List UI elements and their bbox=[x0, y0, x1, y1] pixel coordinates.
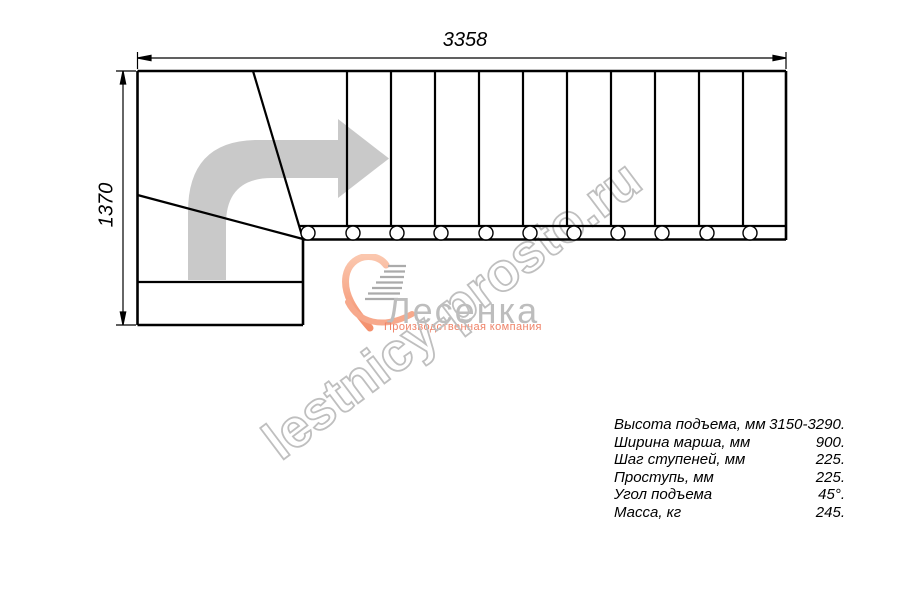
spec-label: Масса, кг bbox=[614, 504, 681, 522]
spec-row: Высота подъема, мм 3150-3290. bbox=[614, 416, 845, 434]
spec-label: Проступь, мм bbox=[614, 469, 714, 487]
stair-outline-group bbox=[138, 71, 787, 325]
dim-arrow-right bbox=[773, 55, 786, 60]
spec-label: Угол подъема bbox=[614, 486, 712, 504]
dimension-height-label: 1370 bbox=[96, 183, 119, 228]
stair-plan-drawing: Лесенка Производственная компания lestni… bbox=[0, 0, 900, 600]
spec-row: Ширина марша, мм 900. bbox=[614, 434, 845, 452]
spec-value: 3150-3290. bbox=[769, 416, 845, 434]
spec-label: Шаг ступеней, мм bbox=[614, 451, 745, 469]
tread-lines bbox=[347, 71, 743, 226]
dim-arrow-top bbox=[120, 71, 125, 84]
spec-row: Масса, кг 245. bbox=[614, 504, 845, 522]
baluster-circles bbox=[301, 226, 757, 240]
direction-arrow bbox=[188, 119, 389, 280]
dimension-width-label: 3358 bbox=[420, 29, 510, 52]
spec-label: Высота подъема, мм bbox=[614, 416, 766, 434]
dim-arrow-left bbox=[138, 55, 152, 60]
spec-value: 900. bbox=[816, 434, 845, 452]
spec-table: Высота подъема, мм 3150-3290. Ширина мар… bbox=[614, 416, 845, 521]
spec-row: Угол подъема 45°. bbox=[614, 486, 845, 504]
spec-row: Проступь, мм 225. bbox=[614, 469, 845, 487]
spec-value: 225. bbox=[816, 469, 845, 487]
dim-arrow-bottom bbox=[120, 312, 125, 325]
spec-value: 245. bbox=[816, 504, 845, 522]
dimension-line-vertical bbox=[116, 71, 136, 325]
spec-label: Ширина марша, мм bbox=[614, 434, 750, 452]
spec-row: Шаг ступеней, мм 225. bbox=[614, 451, 845, 469]
dimension-line-horizontal bbox=[138, 52, 787, 69]
spec-value: 45°. bbox=[818, 486, 845, 504]
spec-value: 225. bbox=[816, 451, 845, 469]
